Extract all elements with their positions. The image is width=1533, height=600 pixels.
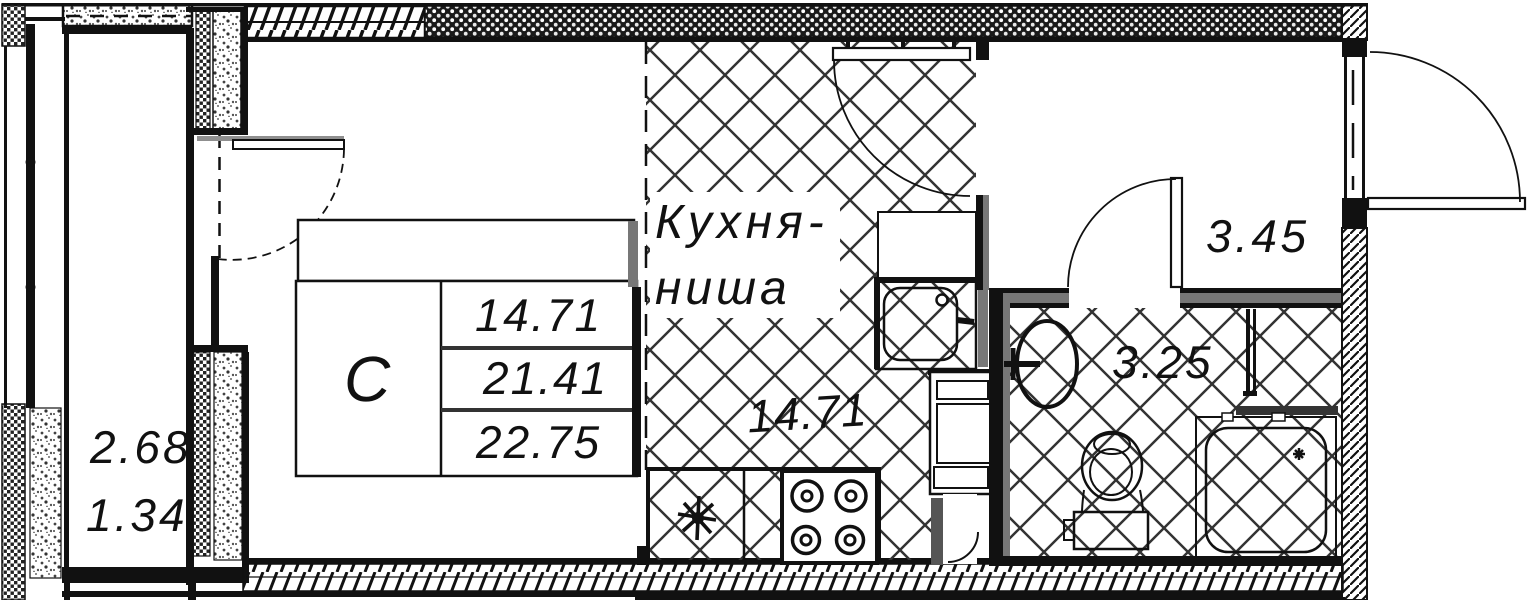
svg-text:21.41: 21.41 [482, 352, 608, 404]
svg-text:3.45: 3.45 [1206, 210, 1310, 262]
svg-text:3.25: 3.25 [1112, 336, 1214, 388]
svg-text:Кухня-: Кухня- [655, 196, 829, 249]
svg-text:С: С [344, 343, 391, 415]
svg-text:14.71: 14.71 [746, 383, 869, 442]
svg-text:14.71: 14.71 [475, 289, 603, 341]
svg-text:2.68: 2.68 [89, 421, 192, 473]
svg-text:1.34: 1.34 [86, 489, 188, 541]
svg-text:22.75: 22.75 [475, 416, 601, 468]
svg-text:ниша: ниша [655, 262, 791, 315]
